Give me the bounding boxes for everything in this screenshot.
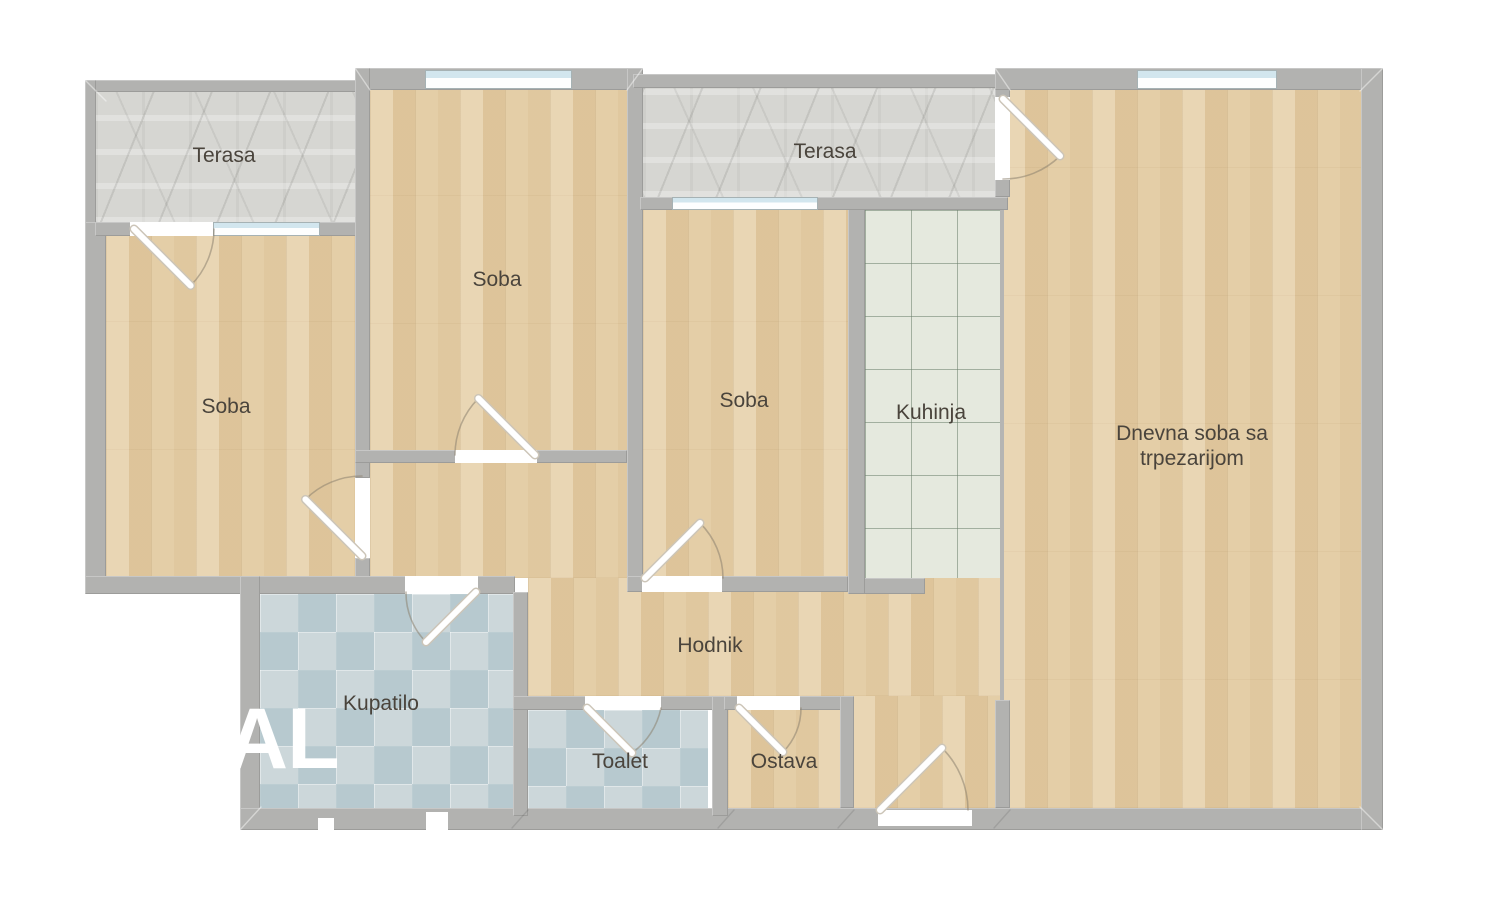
room-label-soba-top: Soba	[472, 268, 521, 292]
room-label-kuhinja: Kuhinja	[896, 401, 966, 425]
room-label-dnevna: Dnevna soba sa trpezarijom	[1116, 421, 1268, 471]
room-label-hodnik: Hodnik	[677, 634, 742, 658]
room-label-kupatilo: Kupatilo	[343, 692, 419, 716]
room-label-terasa-left: Terasa	[192, 144, 255, 168]
floor-plan: Terasa Terasa Soba Soba Soba Kuhinja Dne…	[0, 0, 1500, 910]
room-label-toalet: Toalet	[592, 750, 648, 774]
room-label-dnevna-line1: Dnevna soba sa	[1116, 421, 1268, 446]
wall-bevel	[512, 810, 1010, 828]
room-label-ostava: Ostava	[751, 750, 818, 774]
room-label-dnevna-line2: trpezarijom	[1116, 446, 1268, 471]
room-label-terasa-right: Terasa	[793, 140, 856, 164]
room-label-soba-left: Soba	[201, 395, 250, 419]
watermark-text: AL	[226, 696, 339, 782]
room-label-soba-middle: Soba	[719, 389, 768, 413]
